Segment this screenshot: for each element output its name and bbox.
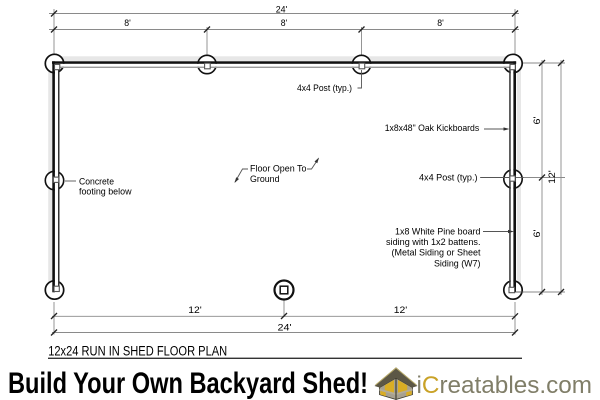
svg-text:footing below: footing below bbox=[79, 187, 132, 198]
svg-text:(Metal Siding or Sheet: (Metal Siding or Sheet bbox=[392, 248, 481, 259]
svg-text:iCreatables.com: iCreatables.com bbox=[417, 372, 593, 399]
svg-text:Build Your Own Backyard Shed!: Build Your Own Backyard Shed! bbox=[8, 367, 368, 400]
svg-text:1x8x48" Oak Kickboards: 1x8x48" Oak Kickboards bbox=[385, 123, 480, 134]
svg-text:Floor Open To: Floor Open To bbox=[250, 164, 307, 175]
svg-text:8': 8' bbox=[437, 18, 444, 28]
svg-text:12': 12' bbox=[188, 305, 202, 315]
svg-text:8': 8' bbox=[124, 18, 131, 28]
svg-text:24': 24' bbox=[278, 323, 292, 333]
svg-text:6': 6' bbox=[532, 229, 542, 237]
svg-text:8': 8' bbox=[281, 18, 288, 28]
svg-text:Ground: Ground bbox=[250, 174, 280, 185]
svg-text:12x24 RUN IN SHED FLOOR PLAN: 12x24 RUN IN SHED FLOOR PLAN bbox=[48, 343, 227, 358]
svg-text:Siding (W7): Siding (W7) bbox=[434, 259, 481, 270]
svg-text:12': 12' bbox=[547, 170, 557, 184]
svg-text:1x8 White Pine board: 1x8 White Pine board bbox=[395, 227, 481, 238]
svg-text:4x4 Post (typ.): 4x4 Post (typ.) bbox=[419, 173, 478, 184]
svg-text:24': 24' bbox=[276, 5, 288, 15]
svg-text:12': 12' bbox=[394, 305, 408, 315]
svg-text:siding with 1x2 battens.: siding with 1x2 battens. bbox=[386, 237, 481, 248]
svg-text:4x4 Post (typ.): 4x4 Post (typ.) bbox=[297, 83, 352, 94]
svg-text:6': 6' bbox=[532, 116, 542, 124]
